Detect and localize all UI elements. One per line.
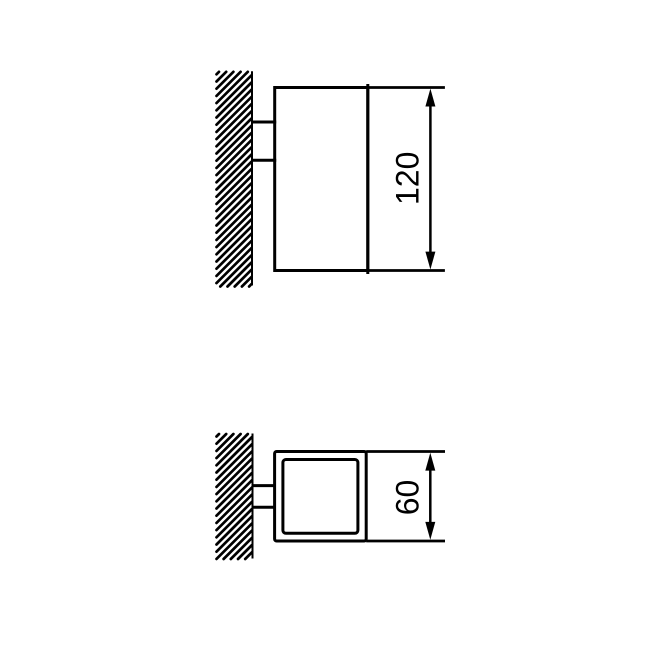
svg-text:60: 60 [389,480,425,516]
svg-text:120: 120 [390,152,426,205]
